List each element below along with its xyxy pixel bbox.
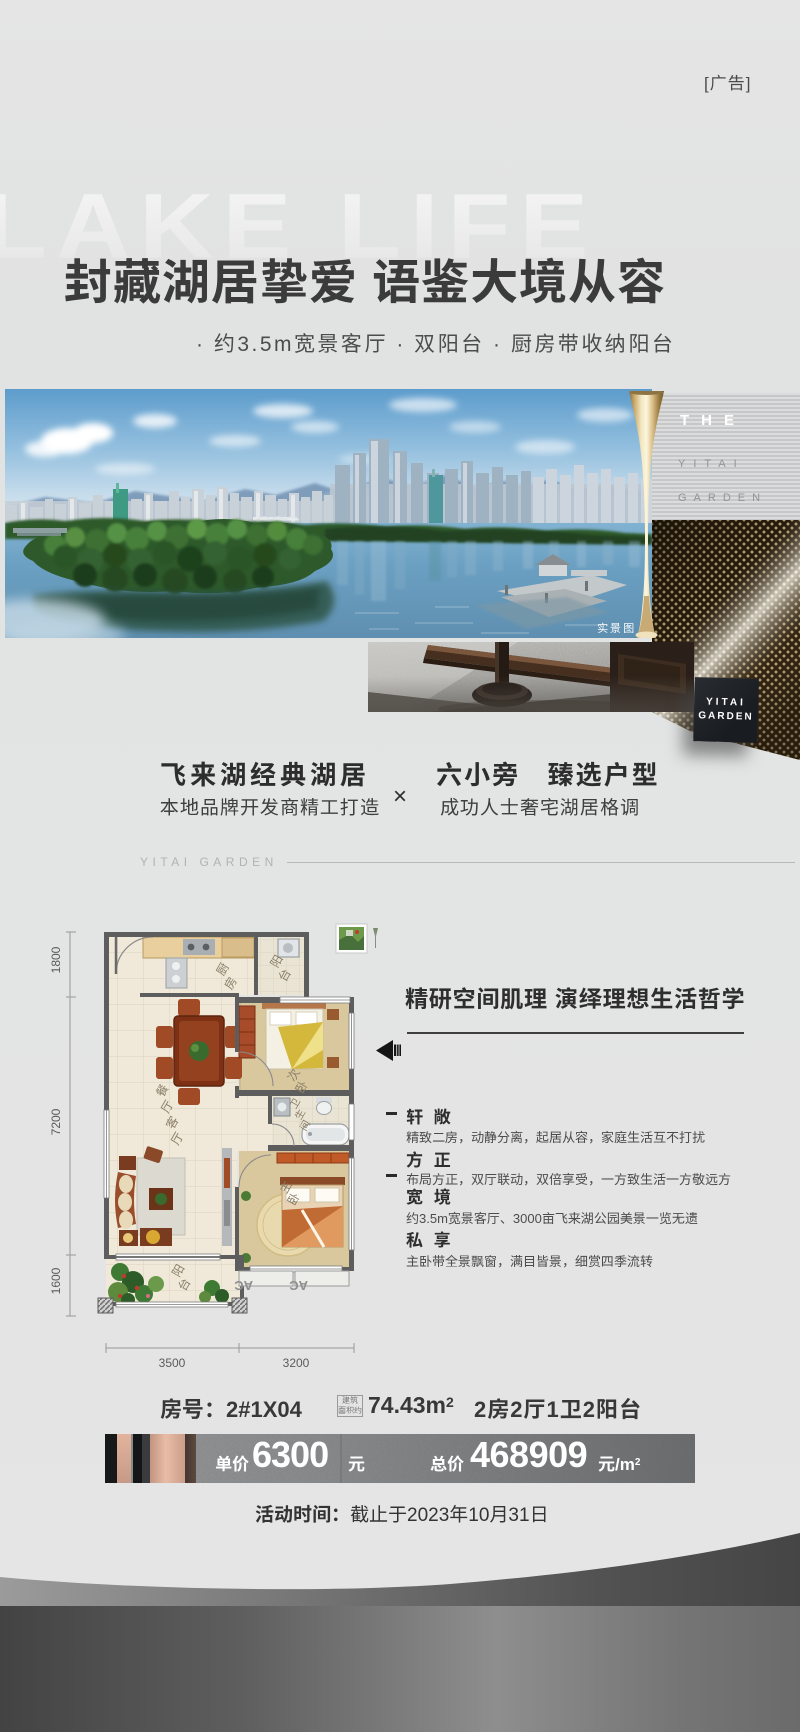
svg-text:7200: 7200 xyxy=(49,1108,63,1135)
svg-text:3200: 3200 xyxy=(283,1356,310,1370)
svg-text:1800: 1800 xyxy=(49,946,63,973)
svg-text:AC: AC xyxy=(234,1278,253,1293)
svg-text:3500: 3500 xyxy=(159,1356,186,1370)
svg-text:1600: 1600 xyxy=(49,1267,63,1294)
svg-text:AC: AC xyxy=(289,1278,308,1293)
